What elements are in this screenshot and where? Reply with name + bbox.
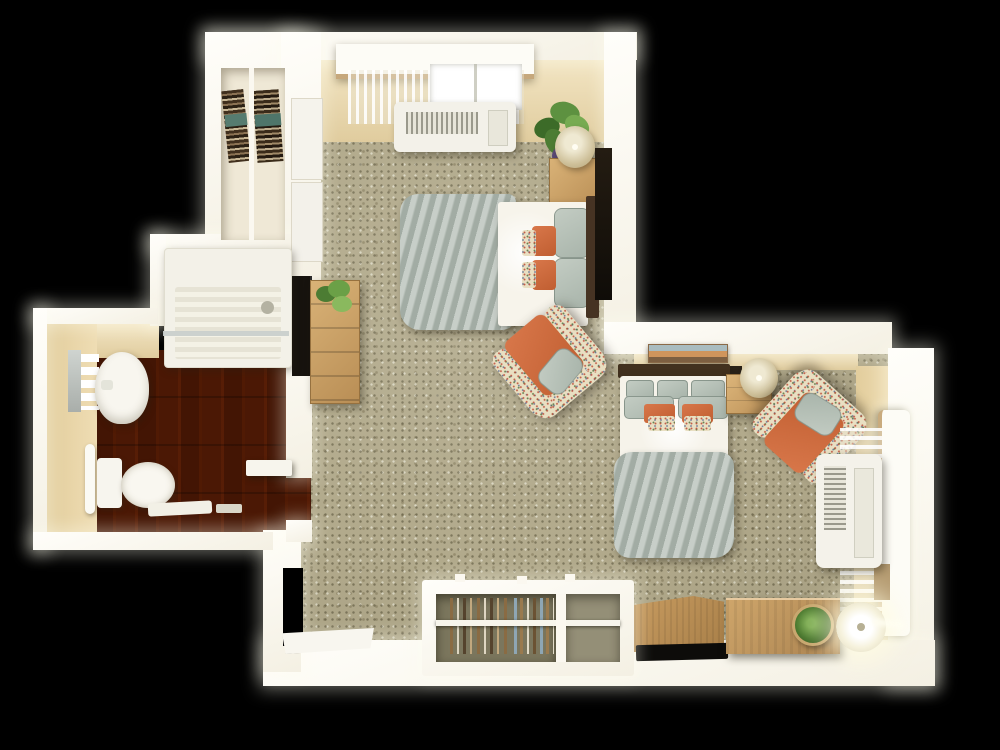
wardrobe-bracket	[565, 574, 575, 582]
linen-teal-right	[255, 113, 282, 127]
bed2-floral-pillow-2	[684, 416, 711, 431]
toilet-bowl	[121, 462, 175, 508]
wardrobe-shelf-rail	[436, 620, 620, 626]
living-table-lamp	[740, 358, 778, 398]
closet-door-upper	[291, 98, 323, 180]
bedroom-table-lamp	[555, 126, 595, 168]
bathroom-right-wall-lower	[286, 520, 312, 542]
toilet-tank	[97, 458, 122, 508]
bed1-sage-pillow-2	[554, 258, 590, 308]
living-window-cornice	[878, 410, 910, 636]
plant-leaves	[332, 296, 352, 312]
wardrobe-bay-right	[566, 594, 620, 662]
shower-tray	[175, 287, 281, 359]
linen-closet-divider	[249, 68, 254, 240]
shower-stall	[164, 248, 292, 368]
bed1-floral-pillow-1	[522, 230, 536, 256]
living-ac-grille	[824, 466, 846, 530]
bedroom-ac-vent	[488, 110, 508, 146]
bathroom-mirror	[68, 350, 81, 412]
linen-teal-left	[224, 113, 247, 127]
floor-lamp-finial	[857, 623, 865, 631]
bedroom-dark-wall-panel	[595, 148, 612, 300]
floorplan-render	[0, 0, 1000, 750]
closet-door-lower	[291, 182, 323, 262]
bed1-floral-pillow-2	[522, 262, 536, 288]
pedestal-sink	[95, 352, 149, 424]
hanging-clothes-group-1	[450, 598, 508, 654]
wardrobe-divider	[556, 594, 566, 662]
bath-accessory	[216, 504, 242, 513]
desk-potted-plant	[792, 604, 834, 646]
wall-tv-bedroom	[292, 276, 312, 376]
media-tv-flat	[636, 643, 728, 661]
lamp-finial	[756, 375, 762, 381]
sink-faucet	[101, 380, 113, 390]
shower-drain	[261, 301, 274, 314]
bathroom-top-wall-lower	[33, 308, 158, 324]
bedroom-ac-grille	[406, 112, 478, 134]
bedroom-ac-unit	[394, 102, 516, 152]
bathroom-door-open	[246, 460, 292, 476]
living-ac-unit	[816, 454, 882, 568]
wardrobe-bracket	[455, 574, 465, 582]
floor-lamp-glowing	[836, 602, 886, 652]
hanging-clothes-group-2	[514, 598, 554, 654]
wardrobe-bracket	[517, 576, 527, 584]
bathroom-bottom-wall	[33, 532, 273, 550]
bed2-foot-comforter	[614, 452, 734, 558]
towel-bar	[85, 444, 95, 514]
living-drape-tan	[874, 564, 890, 600]
landscape-artwork	[648, 344, 728, 363]
shower-glass-edge	[163, 331, 289, 336]
bathroom-outer-left-wall	[33, 308, 47, 550]
living-ac-vent	[854, 468, 874, 558]
bed1-sage-pillow-1	[554, 208, 590, 258]
bed2-floral-pillow-1	[648, 416, 675, 431]
lamp-finial	[572, 144, 578, 150]
dresser-plant	[314, 278, 356, 318]
